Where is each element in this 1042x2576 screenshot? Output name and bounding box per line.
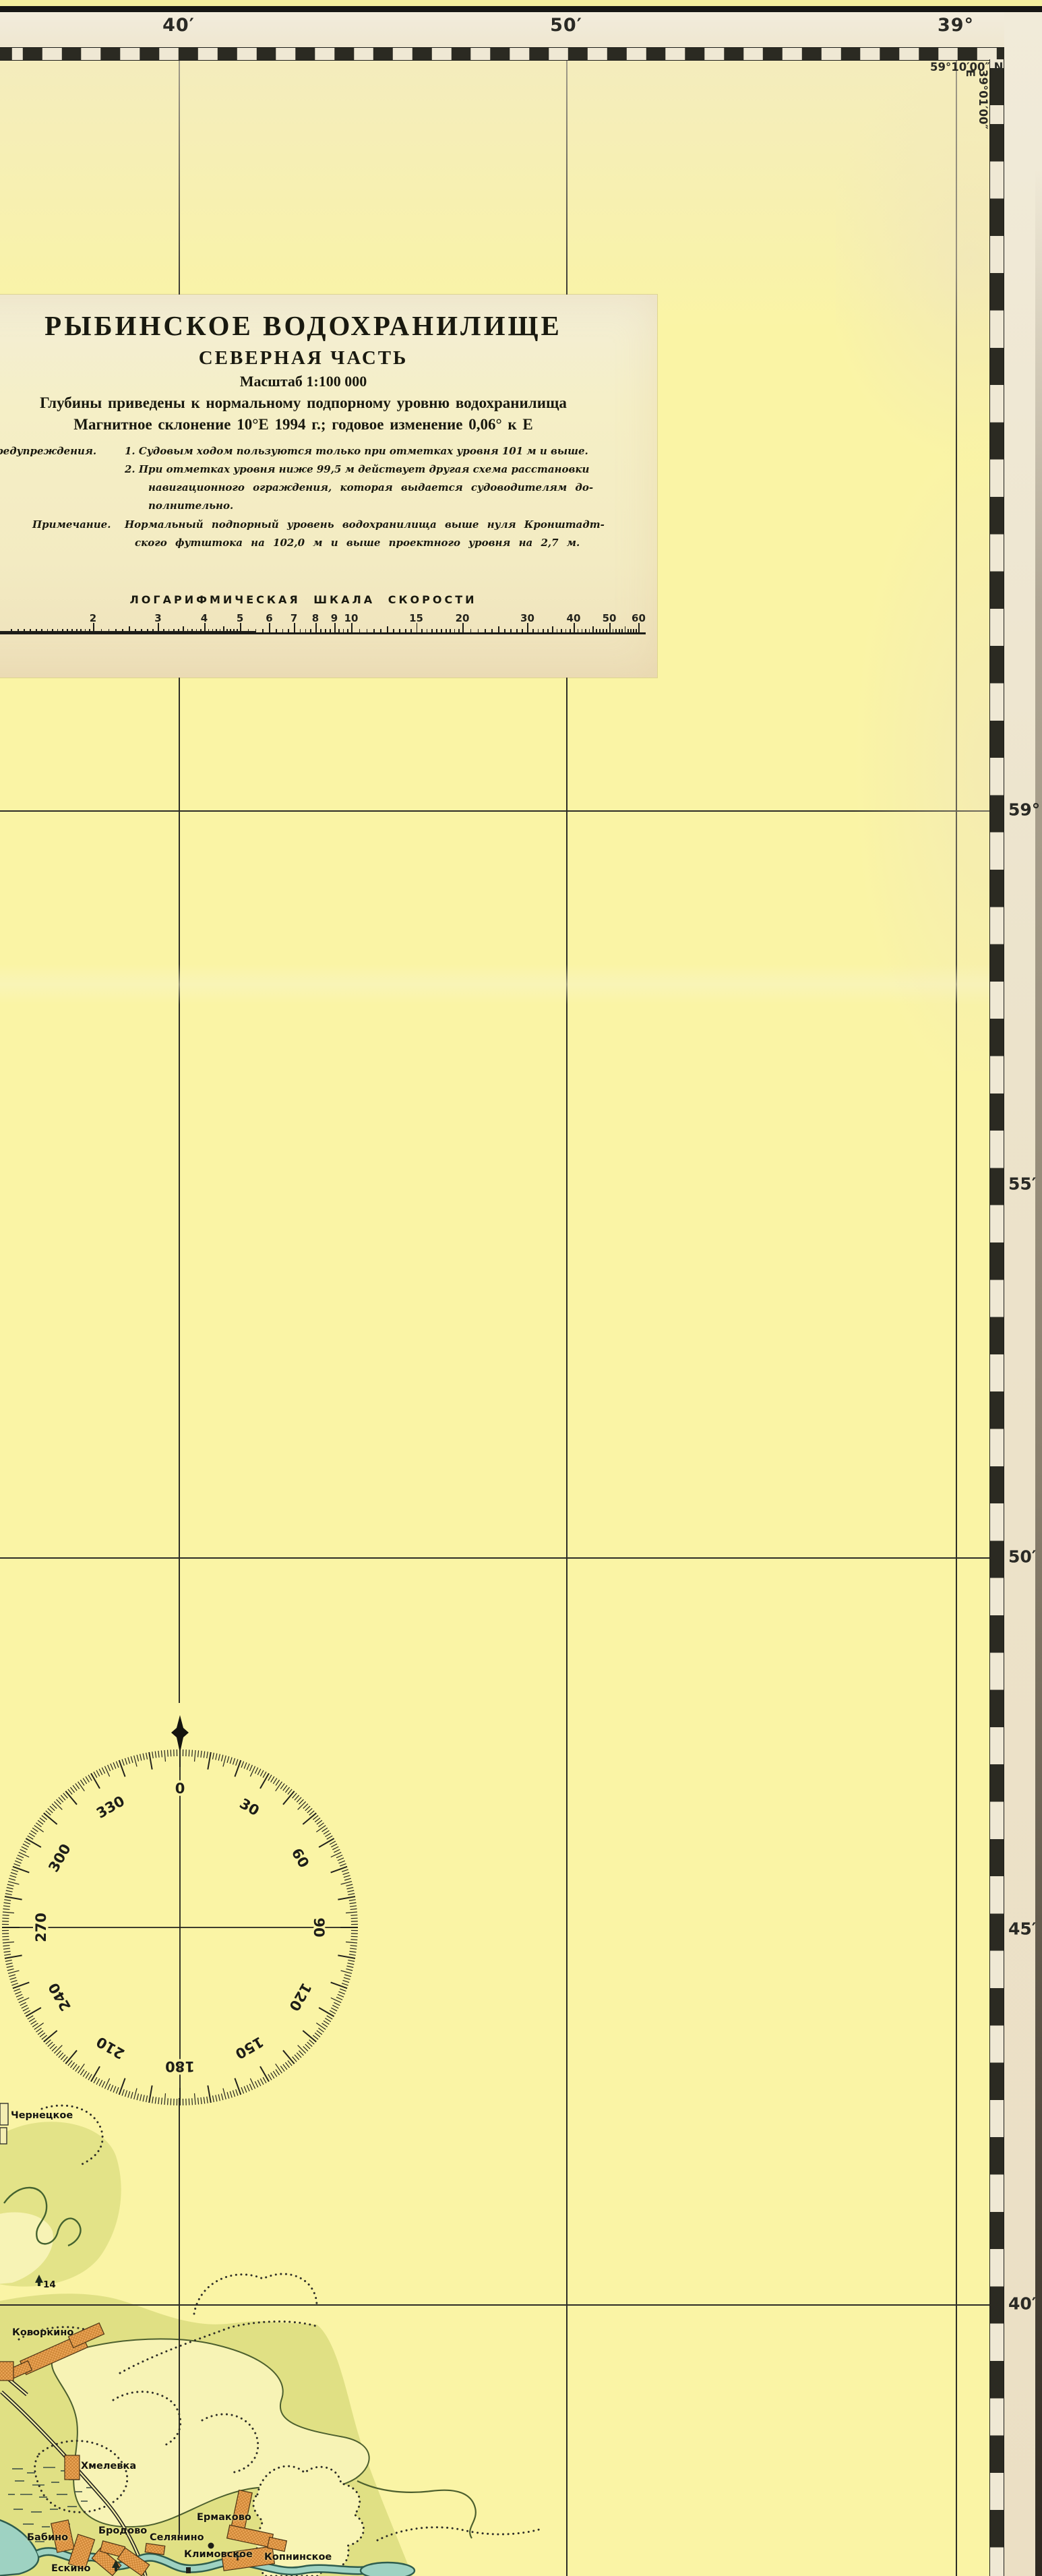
warning-1: 1. Судовым ходом пользуются только при о… xyxy=(125,445,588,457)
rose-degree-label: 0 xyxy=(175,1780,185,1797)
terrain-svg xyxy=(0,2090,708,2576)
log-minor-tick xyxy=(147,629,148,633)
log-minor-tick xyxy=(52,629,53,632)
rose-degree-label: 60 xyxy=(288,1845,312,1870)
rose-degree-label: 210 xyxy=(94,2033,127,2062)
log-minor-tick xyxy=(578,629,579,633)
log-minor-tick xyxy=(255,629,257,633)
log-minor-tick xyxy=(135,629,136,633)
rose-degree-label: 270 xyxy=(33,1913,49,1942)
warning-2-line: навигационного ограждения, которая выдае… xyxy=(148,481,593,493)
paper-wash-right xyxy=(836,59,1004,1071)
log-minor-tick xyxy=(282,629,284,633)
log-minor-tick xyxy=(36,629,37,632)
log-scale-number: 2 xyxy=(90,612,96,624)
log-minor-tick xyxy=(582,629,583,633)
log-minor-tick xyxy=(76,629,78,632)
right-latitude-label: 40′ xyxy=(1008,2294,1036,2313)
log-minor-tick xyxy=(427,629,428,633)
log-scale-number: 7 xyxy=(290,612,297,624)
log-minor-tick xyxy=(421,629,423,633)
log-scale-title: ЛОГАРИФМИЧЕСКАЯ ШКАЛА СКОРОСТИ xyxy=(130,593,477,606)
log-medium-tick xyxy=(625,626,626,632)
log-minor-tick xyxy=(93,629,94,633)
log-minor-tick xyxy=(163,629,164,633)
log-scale-number: 20 xyxy=(456,612,470,624)
log-minor-tick xyxy=(538,629,539,633)
log-medium-tick xyxy=(223,626,224,632)
log-minor-tick xyxy=(330,629,331,633)
log-minor-tick xyxy=(233,629,235,633)
log-minor-tick xyxy=(627,629,629,633)
datum-note: Глубины приведены к нормальному подпорно… xyxy=(40,394,567,412)
river-pool xyxy=(361,2563,415,2576)
log-minor-tick xyxy=(67,629,68,632)
log-minor-tick xyxy=(454,629,456,633)
log-minor-tick xyxy=(57,629,59,632)
log-minor-tick xyxy=(191,629,193,633)
log-minor-tick xyxy=(141,629,142,633)
paper-wash-top xyxy=(0,59,1042,329)
log-scale-number: 9 xyxy=(331,612,338,624)
place-label: Коворкино xyxy=(12,2327,73,2338)
settlement-dot-icon xyxy=(208,2543,214,2549)
log-minor-tick xyxy=(196,629,197,633)
log-minor-tick xyxy=(399,629,400,633)
log-minor-tick xyxy=(276,629,277,633)
log-minor-tick xyxy=(636,629,637,633)
log-minor-tick xyxy=(226,629,228,633)
log-minor-tick xyxy=(220,629,221,633)
log-scale-number: 50 xyxy=(603,612,617,624)
log-minor-tick xyxy=(288,629,289,633)
settlement-block xyxy=(65,2455,80,2480)
log-minor-tick xyxy=(351,629,353,633)
log-minor-tick xyxy=(638,629,640,633)
log-minor-tick xyxy=(516,629,518,633)
log-medium-tick xyxy=(129,626,130,632)
log-scale-number: 30 xyxy=(520,612,534,624)
log-scale-number: 4 xyxy=(201,612,208,624)
log-scale-number: 3 xyxy=(154,612,161,624)
log-scale-number: 10 xyxy=(344,612,359,624)
log-minor-tick xyxy=(85,629,86,632)
log-minor-tick xyxy=(212,629,214,633)
log-minor-tick xyxy=(547,629,549,633)
page-edge-shadow xyxy=(1035,169,1042,2576)
rose-degree-label: 150 xyxy=(233,2033,266,2062)
place-label: Ескино xyxy=(51,2563,90,2574)
place-label: Бродово xyxy=(98,2525,147,2536)
log-minor-tick xyxy=(603,629,604,633)
log-minor-tick xyxy=(305,629,307,633)
log-minor-tick xyxy=(237,629,238,633)
log-minor-tick xyxy=(115,629,117,633)
top-longitude-label: 50′ xyxy=(550,15,582,36)
log-minor-tick xyxy=(320,629,321,633)
log-scale-number: 8 xyxy=(312,612,319,624)
note-line: Нормальный подпорный уровень водохранили… xyxy=(125,518,605,531)
log-minor-tick xyxy=(446,629,447,633)
log-minor-tick xyxy=(158,629,159,633)
parallel-line xyxy=(0,1557,989,1559)
log-medium-tick xyxy=(498,626,499,632)
top-longitude-label: 39° xyxy=(938,15,974,36)
log-scale-number: 60 xyxy=(632,612,646,624)
corner-longitude-label: 39°01′00″ E xyxy=(964,69,989,136)
top-longitude-label: 40′ xyxy=(162,15,195,36)
log-minor-tick xyxy=(11,629,12,632)
log-minor-tick xyxy=(230,629,231,633)
log-minor-tick xyxy=(561,629,562,633)
log-minor-tick xyxy=(410,629,412,633)
meridian-line xyxy=(956,39,957,2576)
log-minor-tick xyxy=(557,629,558,633)
log-minor-tick xyxy=(310,629,311,633)
log-minor-tick xyxy=(606,629,607,633)
log-minor-tick xyxy=(485,629,486,633)
warnings-label: Предупреждения. xyxy=(0,445,96,457)
log-minor-tick xyxy=(262,629,264,633)
log-minor-tick xyxy=(565,629,567,633)
chart-title: РЫБИНСКОЕ ВОДОХРАНИЛИЩЕ xyxy=(44,309,562,342)
log-minor-tick xyxy=(436,629,437,633)
place-label: Чернецкое xyxy=(11,2110,73,2121)
log-minor-tick xyxy=(532,629,534,633)
log-minor-tick xyxy=(24,629,25,632)
log-minor-tick xyxy=(41,629,42,632)
log-scale-number: 5 xyxy=(237,612,243,624)
log-medium-tick xyxy=(592,626,594,632)
log-minor-tick xyxy=(373,629,375,633)
title-block: РЫБИНСКОЕ ВОДОХРАНИЛИЩЕ СЕВЕРНАЯ ЧАСТЬ М… xyxy=(0,295,657,678)
log-minor-tick xyxy=(338,629,340,633)
log-minor-tick xyxy=(367,629,368,633)
log-minor-tick xyxy=(393,629,394,633)
right-latitude-label: 55′ xyxy=(1008,1174,1036,1193)
log-minor-tick xyxy=(613,629,614,633)
log-minor-tick xyxy=(630,629,632,633)
meridian-line xyxy=(179,39,180,1703)
log-minor-tick xyxy=(30,629,31,632)
rose-degree-label: 90 xyxy=(311,1917,327,1937)
log-minor-tick xyxy=(325,629,326,633)
log-minor-tick xyxy=(152,629,154,633)
log-minor-tick xyxy=(458,629,460,633)
log-minor-tick xyxy=(599,629,601,633)
log-minor-tick xyxy=(570,629,571,633)
place-label: Хмелевка xyxy=(81,2461,136,2472)
log-minor-tick xyxy=(380,629,381,633)
log-minor-tick xyxy=(300,629,301,633)
rose-degree-label: 330 xyxy=(94,1793,127,1822)
log-minor-tick xyxy=(431,629,433,633)
log-scale-number: 6 xyxy=(266,612,272,624)
chart-subtitle: СЕВЕРНАЯ ЧАСТЬ xyxy=(199,347,408,369)
top-minute-ruler xyxy=(0,47,1004,61)
log-minor-tick xyxy=(470,629,472,633)
magnetic-note: Магнитное склонение 10°E 1994 г.; годово… xyxy=(73,416,533,433)
log-minor-tick xyxy=(240,629,241,633)
log-minor-tick xyxy=(504,629,505,633)
log-minor-tick xyxy=(122,629,123,633)
log-minor-tick xyxy=(633,629,634,633)
log-minor-tick xyxy=(208,629,210,633)
log-minor-tick xyxy=(109,629,110,633)
rose-degree-label: 180 xyxy=(165,2058,195,2074)
log-medium-tick xyxy=(183,626,184,632)
log-minor-tick xyxy=(615,629,617,633)
right-minute-ruler xyxy=(989,59,1004,2576)
right-latitude-label: 50′ xyxy=(1008,1547,1036,1566)
rose-degree-label: 240 xyxy=(45,1980,74,2014)
right-latitude-label: 45′ xyxy=(1008,1919,1036,1938)
log-minor-tick xyxy=(89,629,90,632)
log-minor-tick xyxy=(187,629,189,633)
log-minor-tick xyxy=(248,629,249,633)
page-top-black-band xyxy=(0,6,1042,12)
log-minor-tick xyxy=(101,629,102,633)
north-star-icon xyxy=(171,1715,189,1753)
note-label: Примечание. xyxy=(32,518,111,531)
log-minor-tick xyxy=(462,629,464,633)
warning-2-line: 2. При отметках уровня ниже 99,5 м дейст… xyxy=(125,463,589,475)
parallel-line xyxy=(0,810,989,812)
settlement-block xyxy=(0,2362,13,2380)
rose-degree-label: 300 xyxy=(45,1841,74,1875)
log-minor-tick xyxy=(543,629,544,633)
log-minor-tick xyxy=(80,629,82,632)
log-minor-tick xyxy=(589,629,590,633)
log-medium-tick xyxy=(552,626,553,632)
log-minor-tick xyxy=(178,629,179,633)
log-minor-tick xyxy=(574,629,575,633)
log-minor-tick xyxy=(315,629,317,633)
log-minor-tick xyxy=(168,629,170,633)
log-minor-tick xyxy=(216,629,217,633)
rose-degree-label: 30 xyxy=(237,1795,262,1819)
page-top-strip xyxy=(0,0,1042,6)
top-margin xyxy=(0,12,1042,47)
log-scale-line xyxy=(0,632,646,634)
meridian-line xyxy=(179,2098,180,2540)
log-minor-tick xyxy=(491,629,493,633)
log-minor-tick xyxy=(585,629,586,633)
right-latitude-label: 59° xyxy=(1008,800,1040,819)
log-minor-tick xyxy=(204,629,206,633)
log-minor-tick xyxy=(200,629,202,633)
place-label: Копнинское xyxy=(264,2552,332,2563)
log-minor-tick xyxy=(619,629,620,633)
paper-wash-mid xyxy=(0,964,1004,1005)
nautical-chart: 0306090120150180210240270300330 59°10′00… xyxy=(0,0,1042,2576)
log-minor-tick xyxy=(450,629,451,633)
log-minor-tick xyxy=(417,629,418,633)
place-label: Селянино xyxy=(150,2532,204,2543)
log-minor-tick xyxy=(18,629,19,632)
log-minor-tick xyxy=(294,629,295,633)
place-label: Климовское xyxy=(184,2549,253,2560)
note-line: ского футштока на 102,0 м и выше проектн… xyxy=(135,537,580,549)
place-label: Ермаково xyxy=(197,2512,251,2523)
log-minor-tick xyxy=(441,629,442,633)
log-minor-tick xyxy=(173,629,175,633)
log-minor-tick xyxy=(522,629,523,633)
log-minor-tick xyxy=(405,629,406,633)
log-medium-tick xyxy=(387,626,388,632)
log-minor-tick xyxy=(621,629,623,633)
log-scale-number: 15 xyxy=(409,612,423,624)
log-minor-tick xyxy=(347,629,348,633)
log-minor-tick xyxy=(62,629,63,632)
spot-height-label: 14 xyxy=(43,2279,56,2290)
parallel-line xyxy=(0,2304,989,2306)
chart-scale-label: Масштаб 1:100 000 xyxy=(240,373,367,390)
log-minor-tick xyxy=(71,629,73,632)
log-minor-tick xyxy=(269,629,270,633)
place-label: Бабино xyxy=(27,2532,68,2543)
warning-2-line: полнительно. xyxy=(148,500,233,512)
log-minor-tick xyxy=(343,629,344,633)
log-minor-tick xyxy=(478,629,479,633)
log-minor-tick xyxy=(359,629,361,633)
monument-icon xyxy=(186,2567,191,2573)
log-minor-tick xyxy=(527,629,528,633)
log-minor-tick xyxy=(334,629,336,633)
rose-degree-label: 120 xyxy=(286,1980,315,2014)
log-minor-tick xyxy=(609,629,611,633)
log-minor-tick xyxy=(510,629,512,633)
compass-rose: 0306090120150180210240270300330 xyxy=(0,1712,377,2144)
log-minor-tick xyxy=(596,629,597,633)
log-minor-tick xyxy=(47,629,49,632)
log-scale-number: 40 xyxy=(567,612,581,624)
